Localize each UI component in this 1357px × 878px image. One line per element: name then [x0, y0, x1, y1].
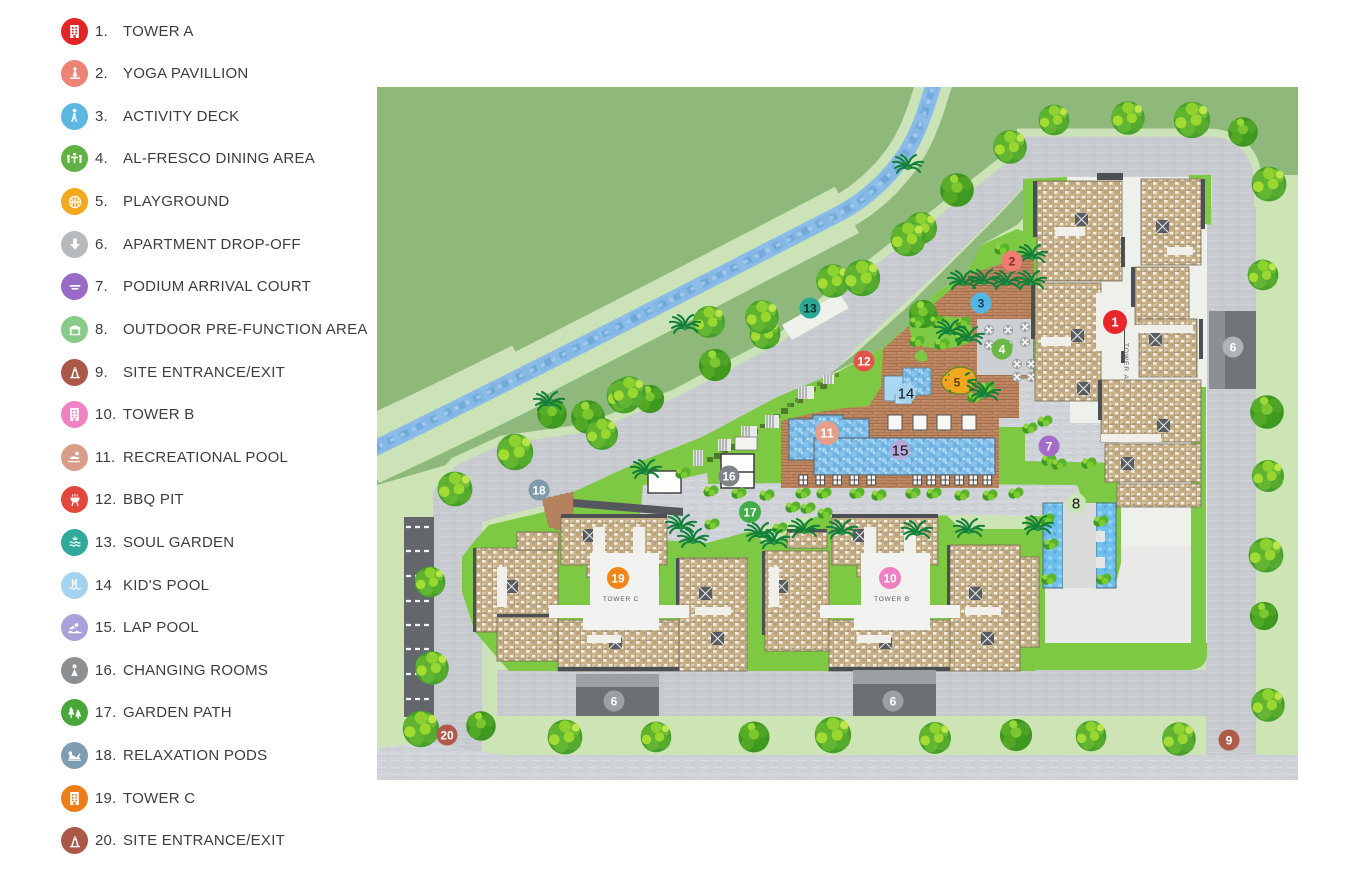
svg-text:15: 15 — [892, 442, 909, 459]
svg-text:14: 14 — [898, 385, 915, 402]
svg-text:13: 13 — [803, 301, 817, 315]
svg-text:6: 6 — [611, 694, 618, 708]
svg-text:TOWER A: TOWER A — [1122, 343, 1129, 380]
svg-text:9: 9 — [1226, 733, 1233, 747]
svg-text:2: 2 — [1009, 254, 1016, 268]
svg-text:8: 8 — [1072, 495, 1080, 512]
svg-text:6: 6 — [1230, 340, 1237, 354]
svg-text:16: 16 — [722, 469, 736, 483]
svg-text:18: 18 — [532, 483, 546, 497]
svg-text:20: 20 — [440, 728, 454, 742]
svg-text:TOWER C: TOWER C — [603, 596, 639, 603]
svg-text:1: 1 — [1111, 315, 1118, 330]
svg-text:11: 11 — [820, 426, 834, 441]
svg-text:17: 17 — [743, 505, 757, 519]
svg-text:10: 10 — [883, 571, 897, 585]
svg-text:6: 6 — [890, 694, 897, 708]
svg-text:19: 19 — [611, 571, 625, 585]
svg-text:7: 7 — [1046, 439, 1053, 453]
svg-text:3: 3 — [978, 296, 985, 310]
svg-text:5: 5 — [954, 375, 961, 389]
svg-text:4: 4 — [999, 342, 1006, 356]
svg-text:12: 12 — [857, 354, 871, 368]
svg-text:TOWER B: TOWER B — [874, 596, 910, 603]
